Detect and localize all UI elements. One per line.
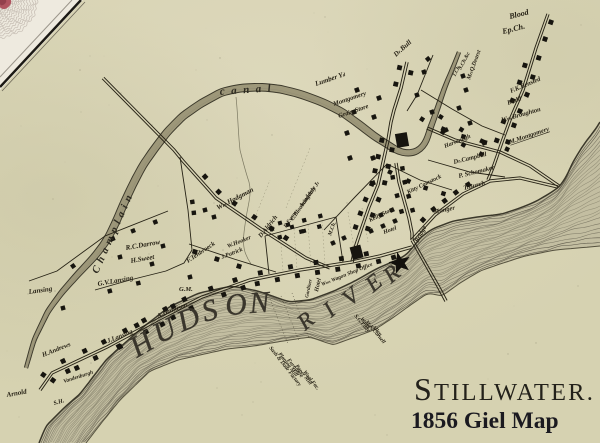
svg-text:G.M.: G.M. <box>179 286 193 293</box>
svg-text:1856 Giel Map: 1856 Giel Map <box>411 408 559 434</box>
